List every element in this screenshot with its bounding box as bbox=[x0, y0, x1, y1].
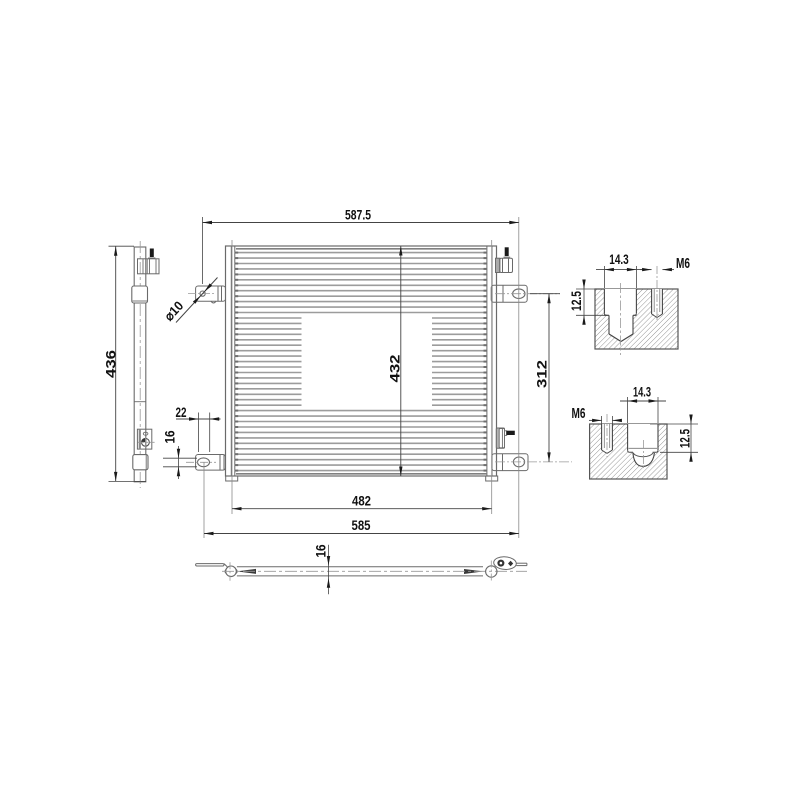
svg-text:12.5: 12.5 bbox=[569, 291, 584, 311]
svg-text:432: 432 bbox=[386, 354, 402, 382]
svg-text:M6: M6 bbox=[572, 406, 586, 422]
svg-text:16: 16 bbox=[312, 544, 328, 557]
svg-text:14.3: 14.3 bbox=[609, 251, 629, 267]
svg-text:312: 312 bbox=[534, 360, 550, 388]
svg-text:482: 482 bbox=[352, 493, 371, 509]
svg-text:587.5: 587.5 bbox=[345, 207, 371, 223]
svg-text:12.5: 12.5 bbox=[678, 429, 693, 448]
svg-text:M6: M6 bbox=[676, 256, 690, 272]
svg-text:16: 16 bbox=[162, 430, 178, 443]
svg-text:14.3: 14.3 bbox=[633, 384, 651, 400]
svg-text:22: 22 bbox=[176, 404, 187, 420]
svg-text:436: 436 bbox=[102, 350, 118, 378]
svg-text:⌀10: ⌀10 bbox=[161, 298, 186, 324]
svg-text:585: 585 bbox=[352, 517, 371, 533]
